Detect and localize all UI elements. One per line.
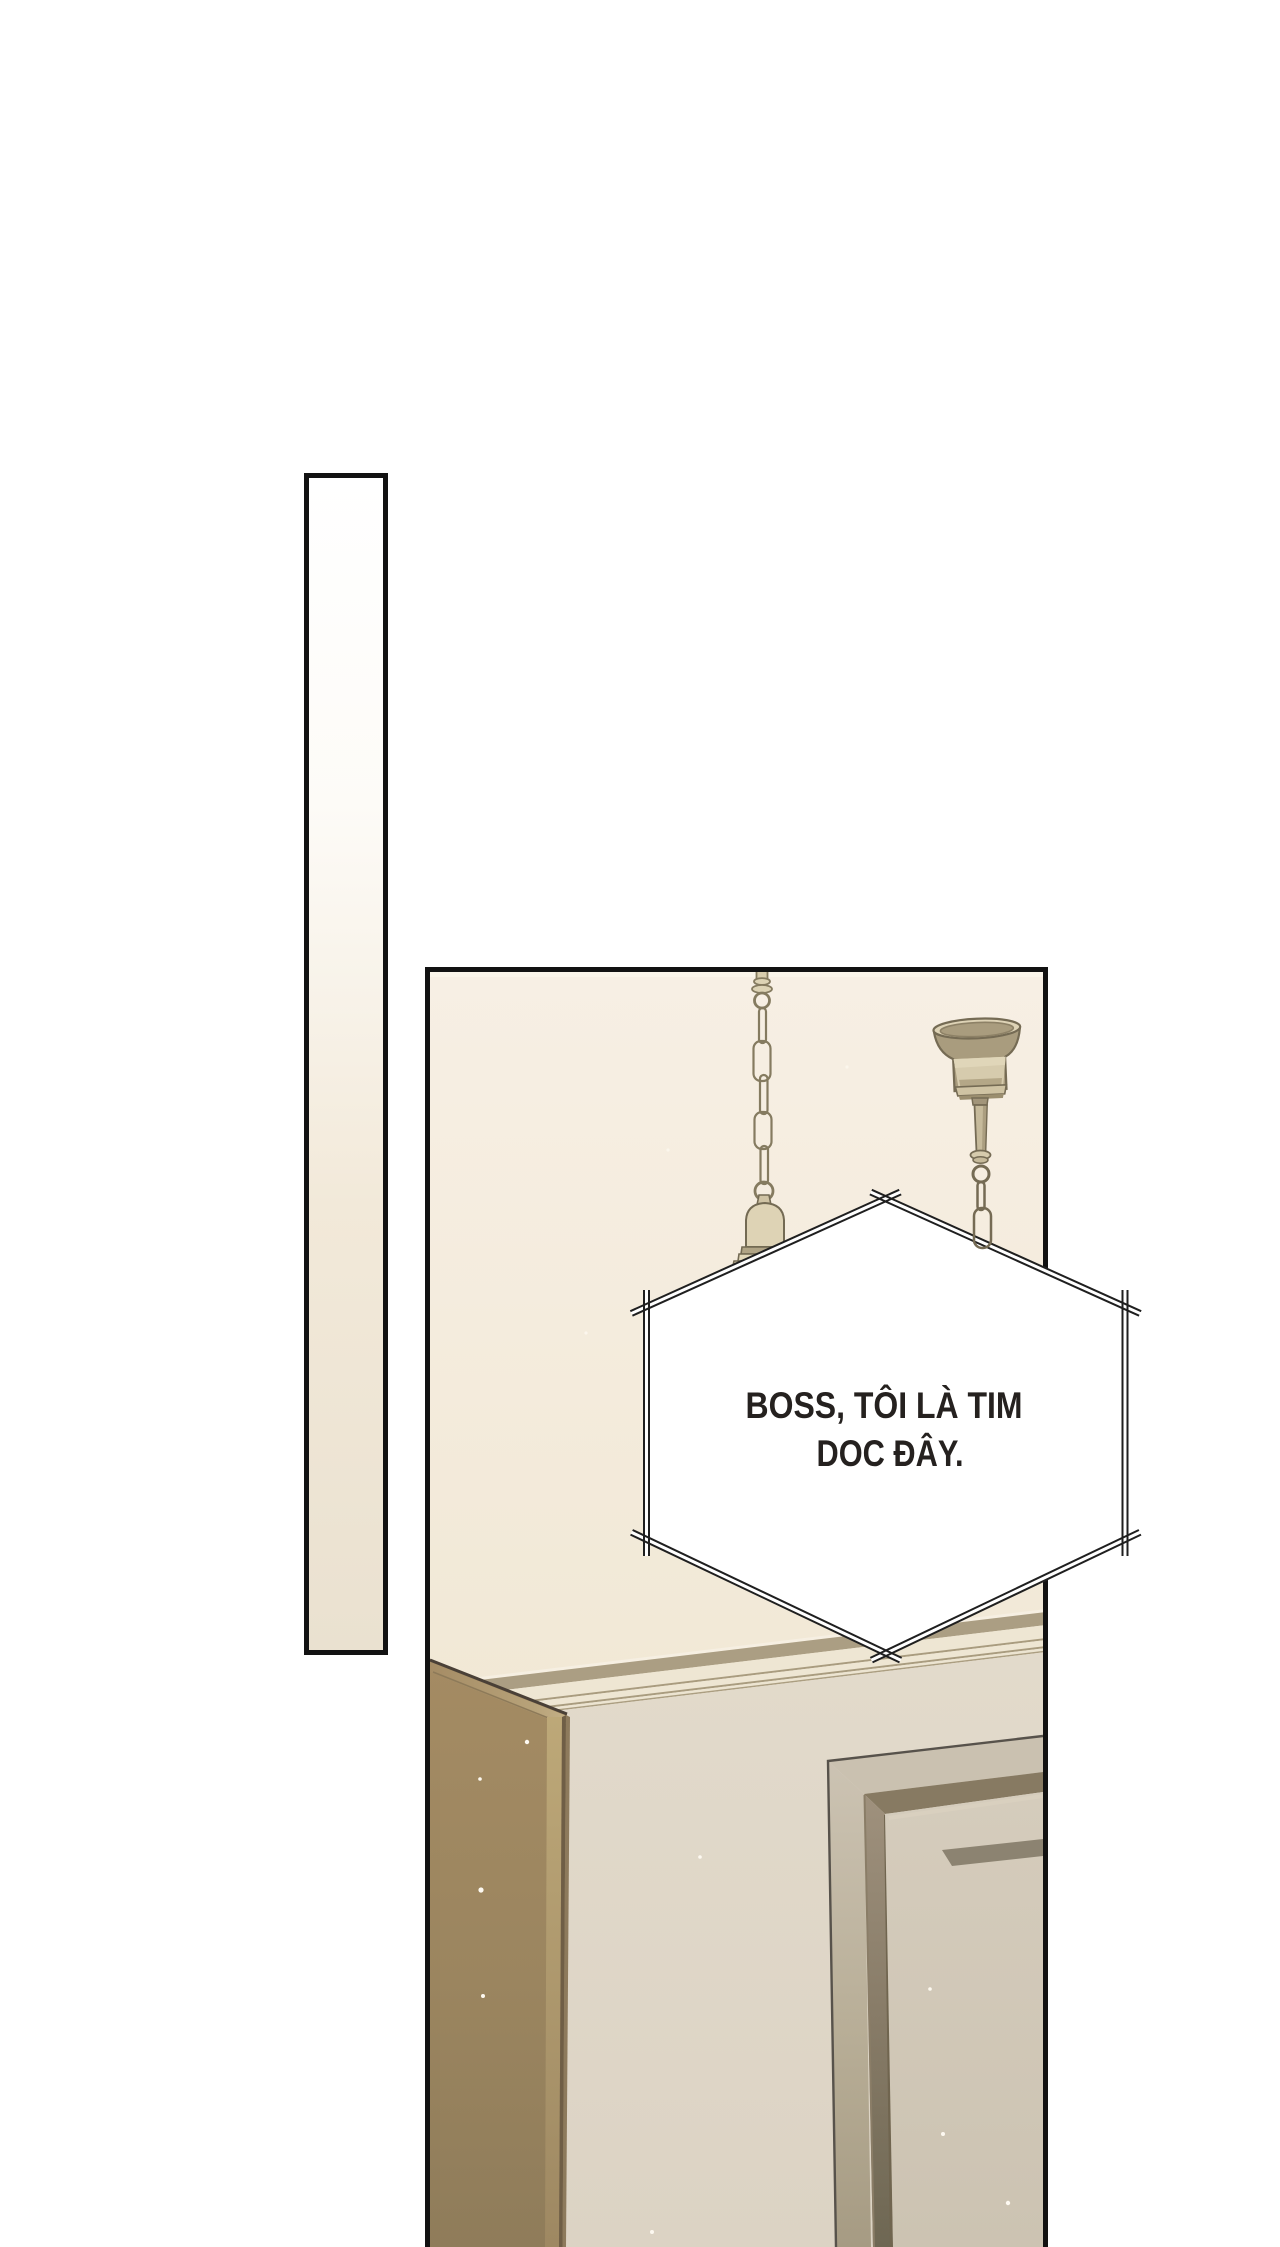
svg-text:DOC ĐÂY.: DOC ĐÂY.	[817, 1432, 964, 1474]
svg-text:BOSS, TÔI LÀ TIM: BOSS, TÔI LÀ TIM	[746, 1384, 1023, 1426]
